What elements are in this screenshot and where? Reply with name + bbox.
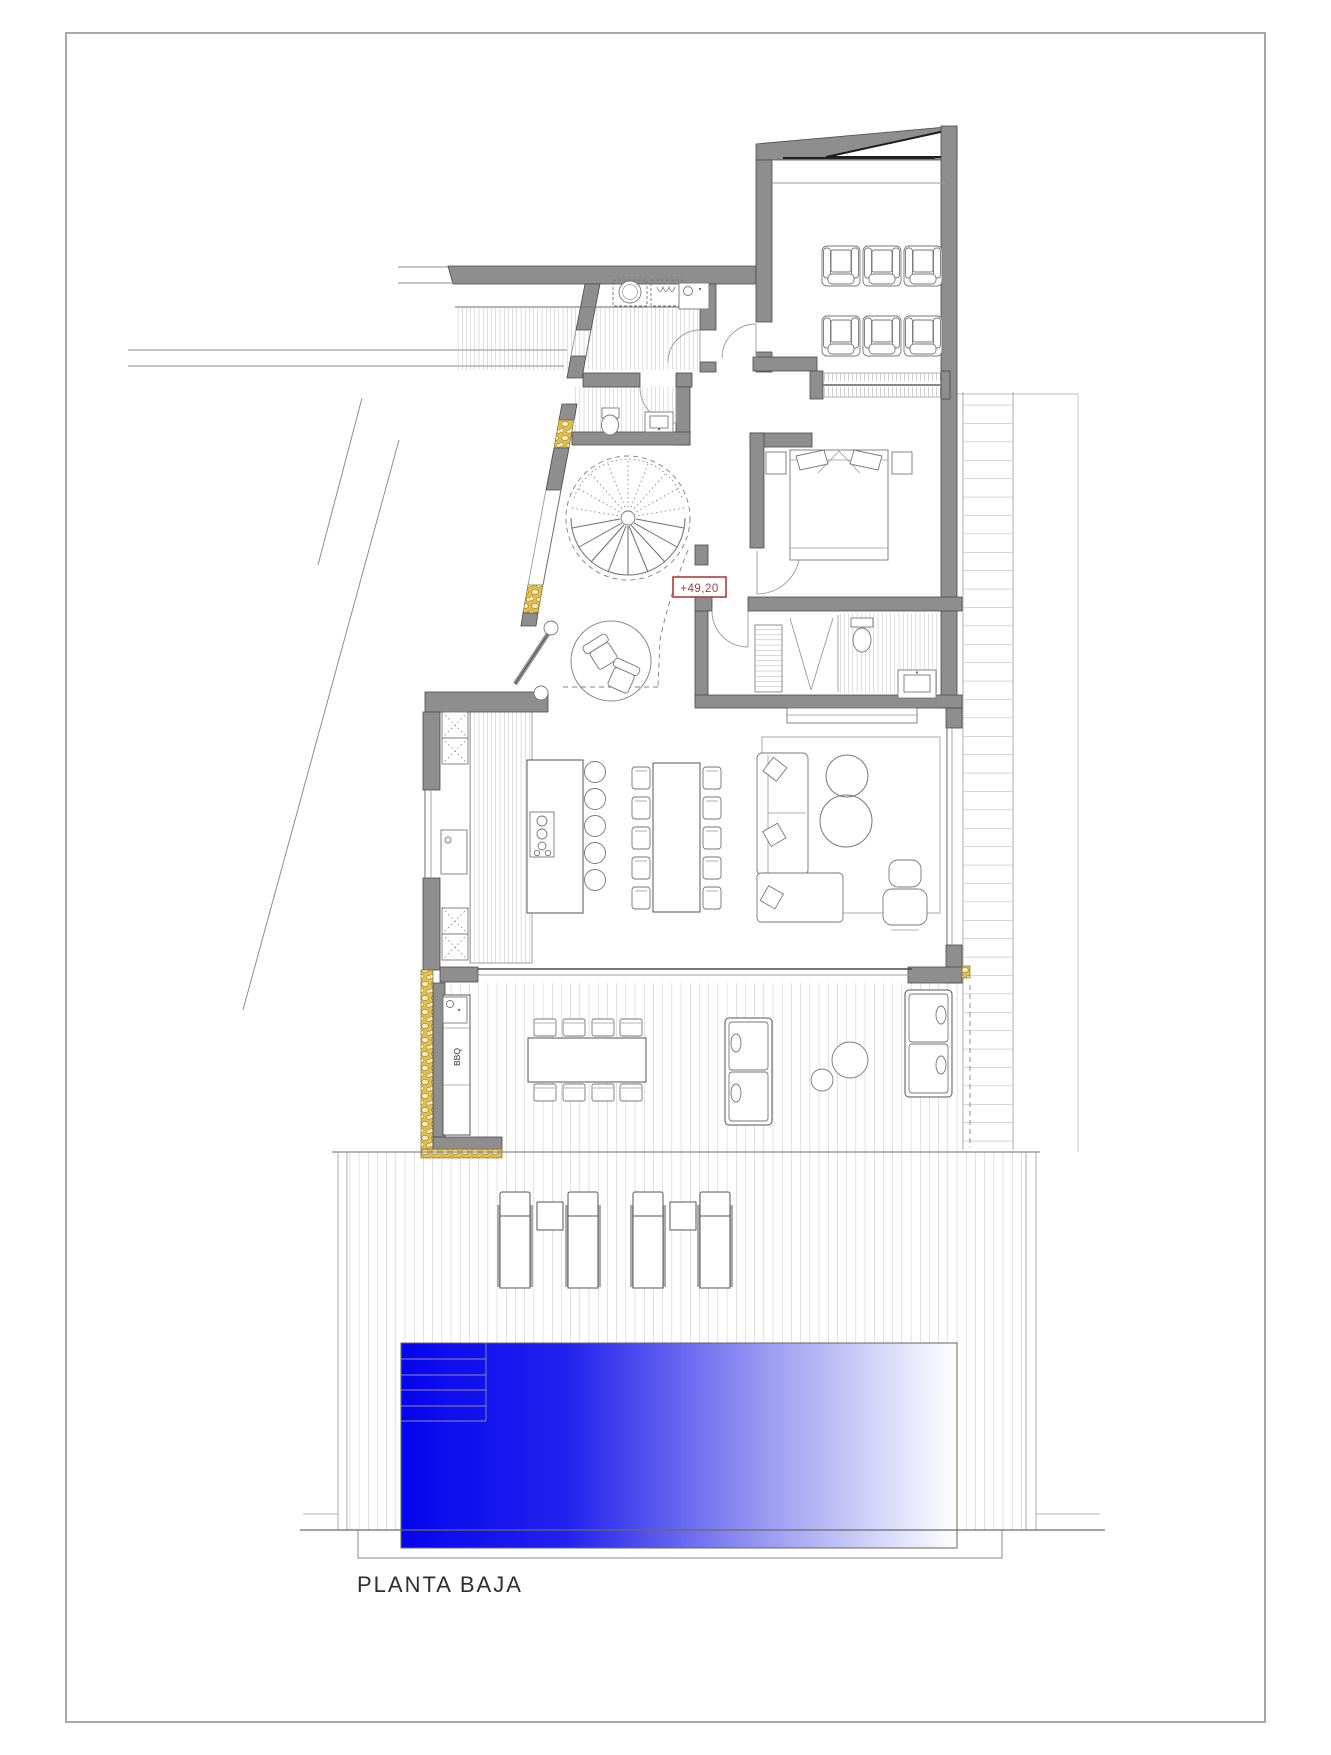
elevation-label: +49,20	[680, 583, 719, 595]
media-room-armchairs	[822, 246, 942, 356]
toilet-icon	[851, 618, 873, 652]
coffee-table	[820, 795, 872, 847]
towel-radiator	[755, 625, 782, 692]
side-table	[811, 1069, 833, 1091]
sun-lounger-icon	[630, 1192, 666, 1288]
floor-plan-sheet: +49,20	[0, 0, 1331, 1755]
sun-lounger-icon	[697, 1192, 733, 1288]
wall-north-band	[448, 266, 756, 284]
laundry-sink-icon	[679, 283, 709, 309]
bar-stools	[585, 762, 606, 891]
nightstand	[892, 452, 912, 474]
outdoor-dining-table	[528, 1038, 646, 1082]
sideboard	[787, 708, 917, 723]
lounge-chair	[883, 860, 927, 930]
stair-newel	[621, 511, 635, 525]
exterior-steps	[963, 392, 1013, 1150]
armchair-icon	[863, 246, 901, 286]
wall-east	[941, 126, 957, 708]
cooktop-icon	[530, 812, 554, 857]
pivot-entry-door	[515, 621, 558, 700]
armchair-icon	[904, 316, 942, 356]
spiral-staircase	[563, 456, 690, 687]
stone-pillar	[554, 420, 574, 448]
armchair-icon	[822, 316, 860, 356]
armchair-icon	[904, 246, 942, 286]
outdoor-sofa	[905, 990, 952, 1097]
kitchen-counter-run	[470, 708, 532, 963]
coffee-table	[826, 755, 868, 797]
wardrobe-rail	[823, 373, 941, 397]
vanity-sink	[898, 670, 936, 698]
sun-lounger-icon	[565, 1192, 601, 1288]
outdoor-sofa	[725, 1018, 772, 1125]
deck-side-table	[670, 1202, 696, 1230]
bedroom	[766, 450, 912, 560]
sun-lounger-icon	[497, 1192, 533, 1288]
nightstand	[766, 452, 786, 474]
terrace-decking	[440, 983, 963, 1152]
sliding-glass-front	[478, 969, 912, 975]
bbq-label: BBQ	[452, 1048, 462, 1066]
reading-nook	[571, 621, 651, 701]
armchair-icon	[822, 246, 860, 286]
floor-plan-drawing: +49,20	[0, 0, 1331, 1755]
toilet-icon	[602, 415, 619, 435]
side-table	[832, 1042, 868, 1078]
shower-icon	[790, 615, 838, 692]
wall-sink-icon	[441, 830, 467, 874]
stone-wall	[421, 970, 433, 1155]
plan-title: PLANTA BAJA	[357, 1572, 523, 1597]
armchair-icon	[863, 316, 901, 356]
sofa	[757, 753, 843, 922]
bbq-counter: BBQ	[443, 995, 470, 1135]
dining-area	[632, 763, 721, 912]
living-room	[757, 708, 940, 930]
deck-side-table	[537, 1202, 563, 1230]
elevation-badge: +49,20	[673, 577, 726, 597]
stone-pillar	[523, 585, 543, 613]
dining-table	[653, 763, 700, 912]
